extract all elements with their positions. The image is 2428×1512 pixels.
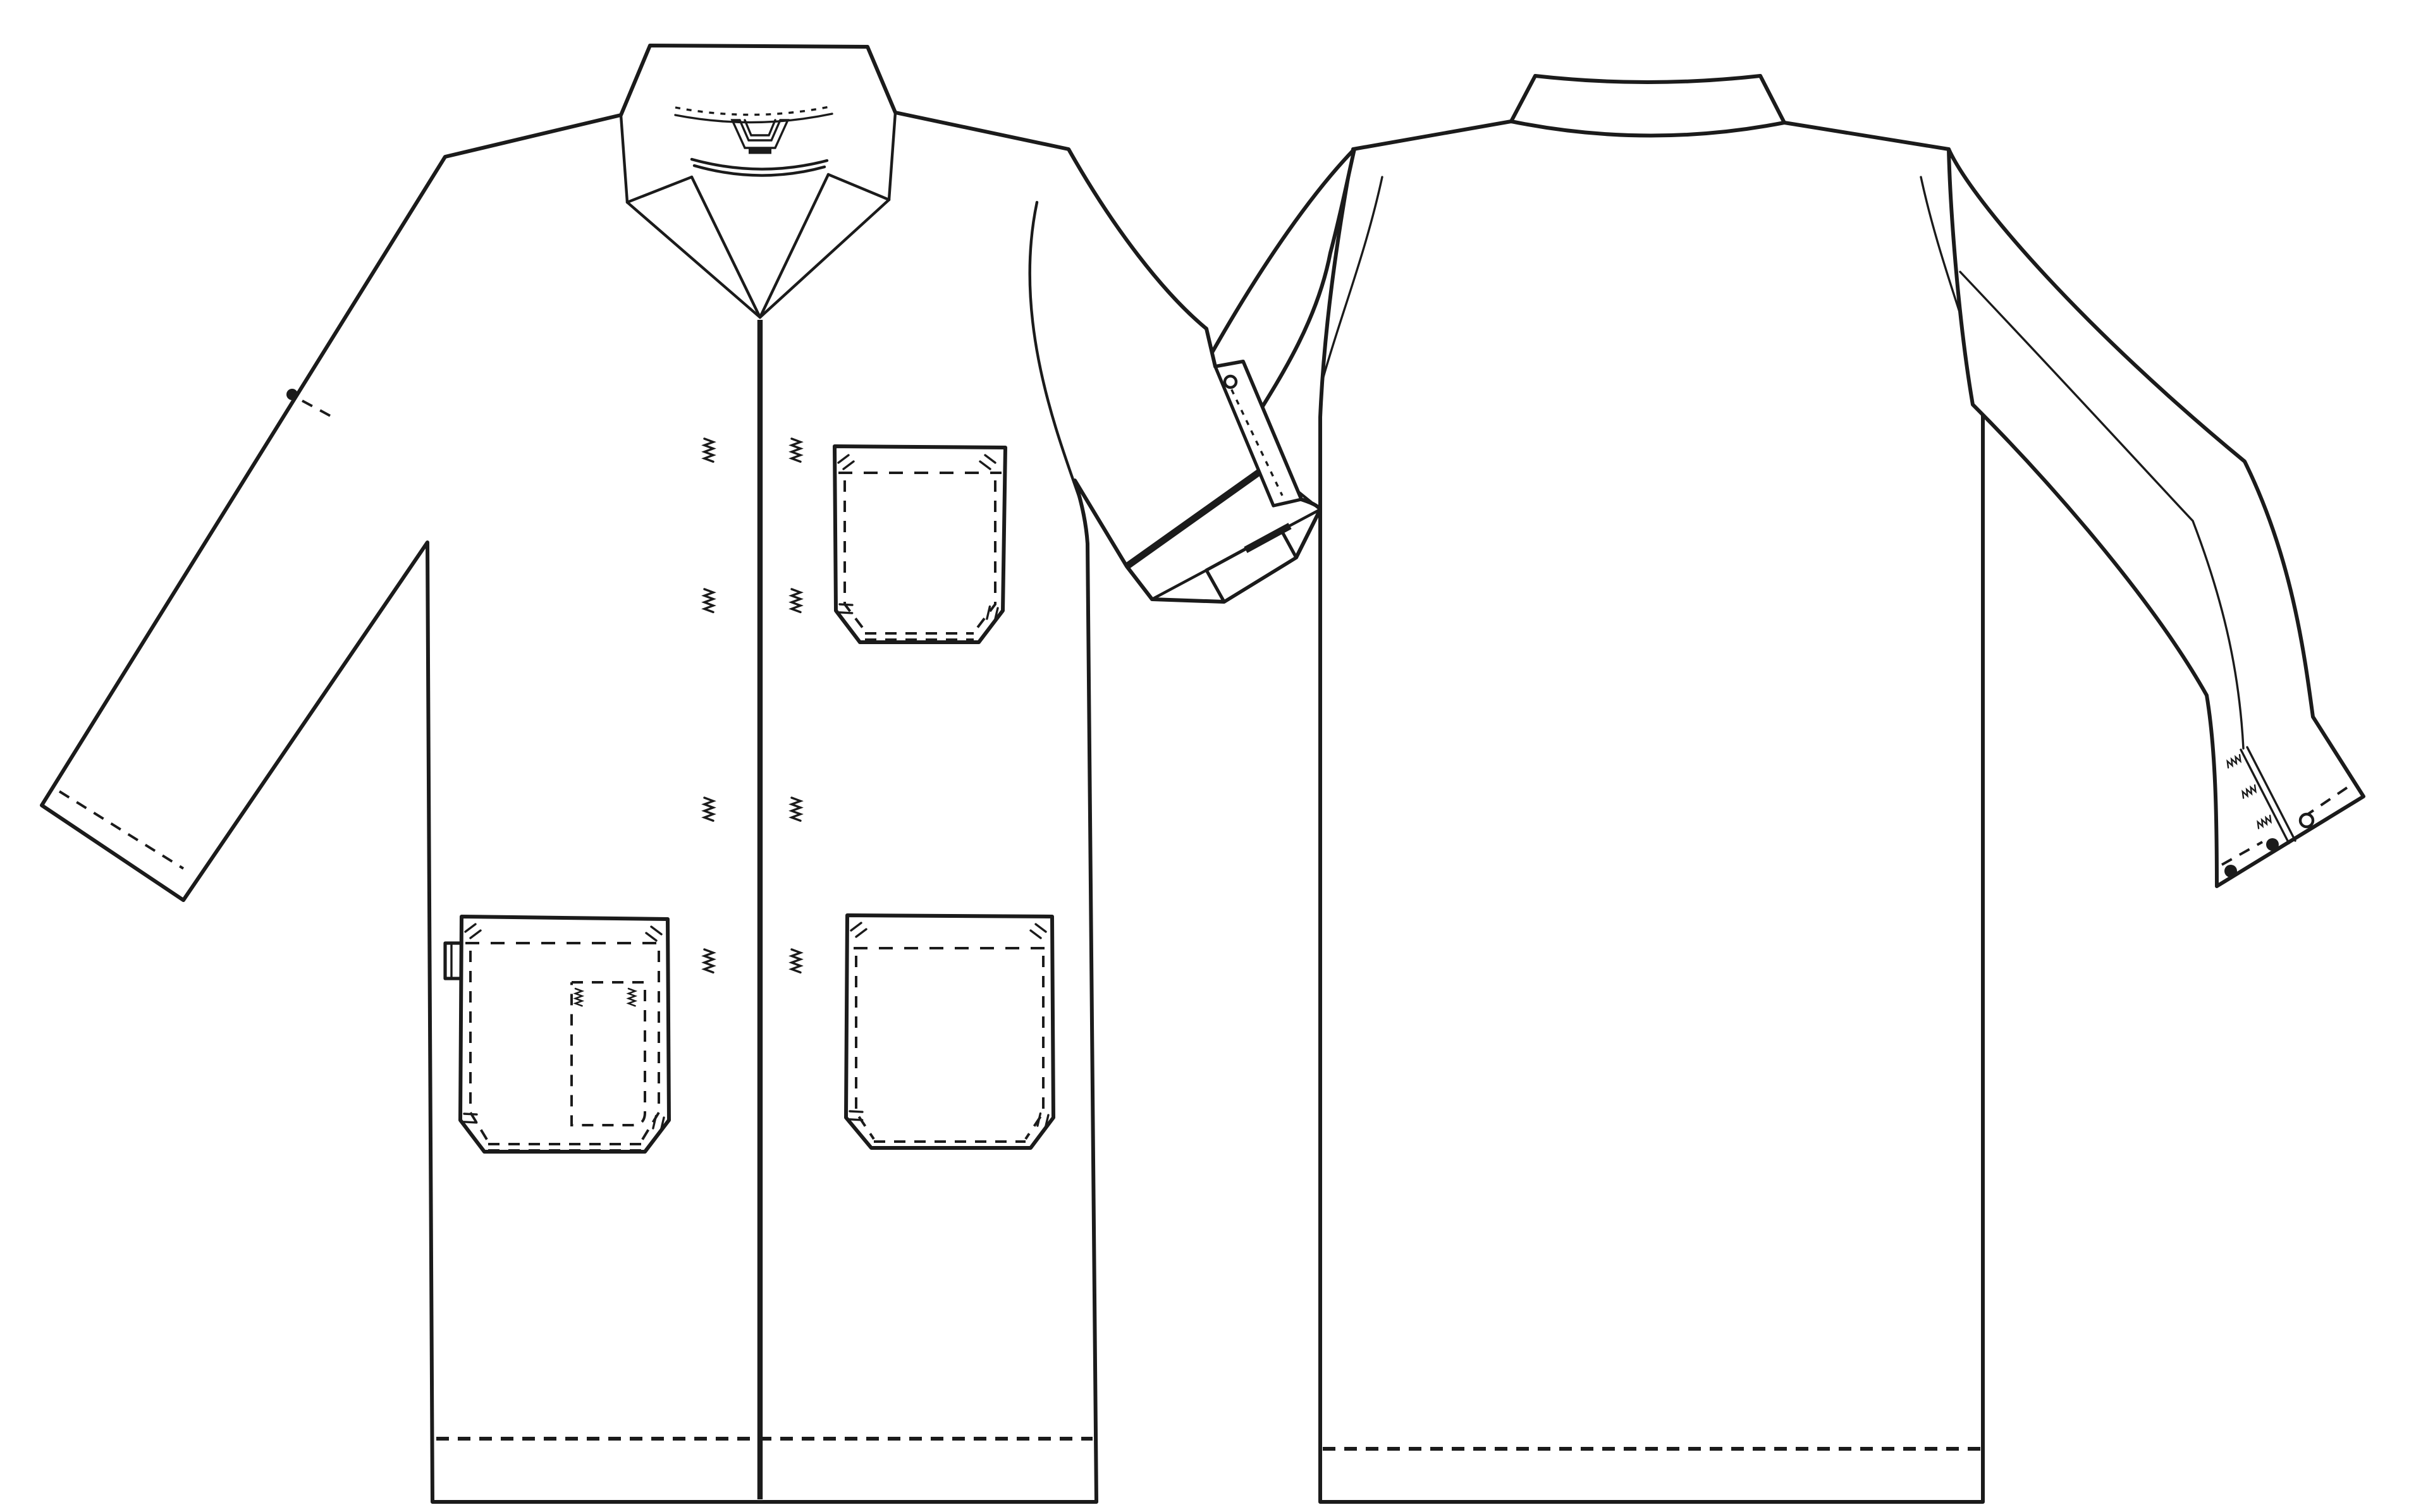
back-collar xyxy=(1511,76,1784,136)
chest-pocket xyxy=(835,446,1005,642)
front-silhouette xyxy=(42,46,1320,1502)
back-right-sleeve xyxy=(1949,149,2364,886)
back-body-panel xyxy=(1320,121,1983,1502)
back-cuff-button-3 xyxy=(2300,814,2313,827)
back-view xyxy=(1208,76,2364,1502)
back-cuff-button-1 xyxy=(2224,865,2237,877)
elbow-roll-button xyxy=(286,389,298,400)
front-view xyxy=(42,46,1320,1502)
tab-buttonhole xyxy=(1225,376,1236,387)
right-hip-pocket xyxy=(846,915,1053,1148)
back-cuff-button-2 xyxy=(2266,838,2279,851)
flat-sketch-canvas xyxy=(0,0,2428,1512)
lab-coat-flat-sketch: Lab coat technical flat sketch - front a… xyxy=(0,0,2428,1512)
left-hip-pocket xyxy=(445,917,669,1152)
